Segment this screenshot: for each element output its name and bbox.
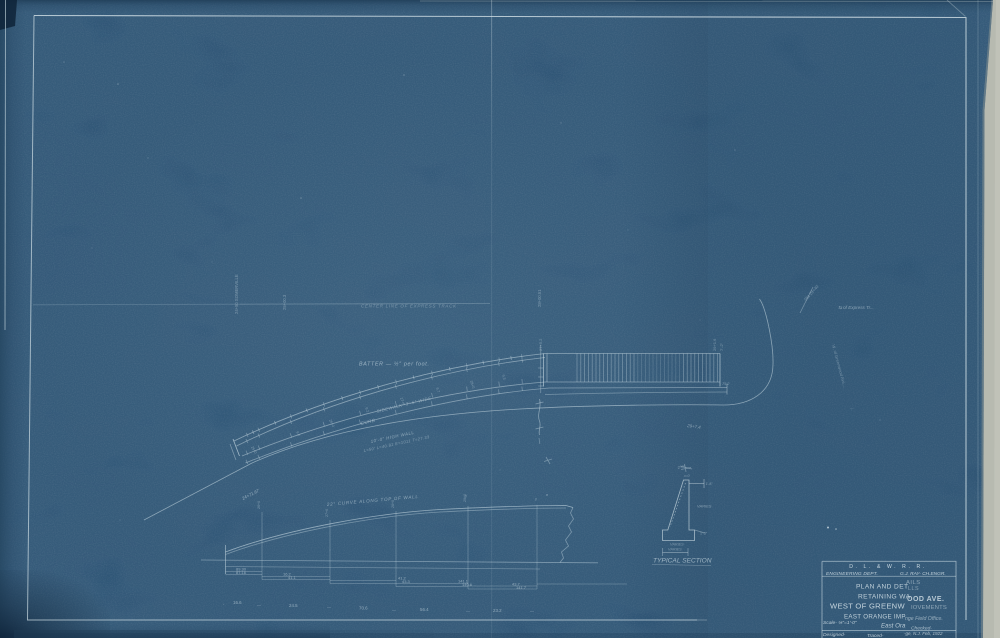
svg-text:1'-3": 1'-3" [700, 532, 708, 536]
svg-text:CENTER LINE OF EXPRESS TRACK: CENTER LINE OF EXPRESS TRACK [361, 304, 457, 309]
svg-text:y: y [465, 493, 467, 498]
svg-text:RETAINING WA: RETAINING WA [858, 594, 911, 601]
svg-text:IOVEMENTS: IOVEMENTS [911, 605, 947, 611]
svg-text:27+5.2: 27+5.2 [538, 338, 543, 351]
svg-text:x=0': x=0' [684, 474, 691, 478]
svg-text:East Ora: East Ora [881, 623, 906, 630]
svg-text:87.16: 87.16 [236, 570, 247, 575]
svg-text:nge Field Office.: nge Field Office. [905, 616, 943, 622]
svg-text:140.6: 140.6 [462, 582, 473, 587]
svg-text:70.6: 70.6 [359, 606, 368, 611]
svg-text:—: — [466, 609, 470, 614]
svg-text:7'-2": 7'-2" [719, 342, 724, 351]
svg-text:ENGINEERING DEPT.: ENGINEERING DEPT. [826, 571, 878, 577]
svg-text:41.1: 41.1 [288, 575, 297, 580]
svg-text:24.5: 24.5 [289, 603, 298, 608]
svg-text:VARIES: VARIES [697, 504, 712, 509]
svg-text:28+00.51: 28+00.51 [537, 289, 542, 307]
svg-text:VARIES: VARIES [670, 543, 684, 547]
svg-text:26+0: 26+0 [257, 501, 261, 509]
svg-text:29+1.6: 29+1.6 [712, 338, 717, 351]
svg-text:Designed-: Designed- [823, 632, 846, 638]
svg-text:y: y [535, 496, 537, 501]
svg-text:D. L. & W. R. R.: D. L. & W. R. R. [849, 564, 927, 570]
svg-text:—: — [530, 608, 534, 613]
svg-text:EAST ORANGE IMP: EAST ORANGE IMP [844, 614, 906, 621]
svg-text:-ge, N.J. Feb, 1922: -ge, N.J. Feb, 1922 [904, 631, 943, 636]
svg-text:TYPICAL SECTION: TYPICAL SECTION [653, 558, 712, 565]
svg-text:27+0: 27+0 [325, 509, 329, 517]
svg-text:25+00.3: 25+00.3 [282, 294, 287, 310]
svg-text:WEST OF GREENW: WEST OF GREENW [830, 602, 905, 611]
svg-text:—: — [327, 605, 331, 610]
svg-text:56.4: 56.4 [420, 607, 429, 612]
svg-text:—: — [392, 607, 396, 612]
svg-text:PLAN AND DET: PLAN AND DET [856, 584, 908, 591]
svg-text:—: — [257, 602, 261, 607]
svg-text:16.6: 16.6 [233, 600, 242, 605]
svg-text:G.J. RAY- CH.ENGR.: G.J. RAY- CH.ENGR. [900, 571, 946, 577]
svg-text:28+0: 28+0 [391, 500, 395, 508]
svg-text:23.2: 23.2 [493, 608, 502, 613]
svg-text:BATTER — ½" per foot.: BATTER — ½" per foot. [359, 361, 430, 368]
svg-text:VARIES: VARIES [668, 548, 682, 552]
svg-text:141.7: 141.7 [516, 585, 527, 590]
svg-text:43.3: 43.3 [402, 579, 411, 584]
svg-text:LLS: LLS [908, 586, 919, 592]
svg-text:24+50 SOMERVILLE: 24+50 SOMERVILLE [234, 274, 239, 314]
svg-text:OOD AVE.: OOD AVE. [907, 596, 944, 603]
svg-text:Scale- ⅛"=1'-0": Scale- ⅛"=1'-0" [823, 620, 857, 626]
svg-text:⇆ of Express Tr...: ⇆ of Express Tr... [838, 305, 874, 310]
svg-text:1'-8": 1'-8" [706, 482, 714, 486]
svg-text:75.2: 75.2 [722, 382, 730, 386]
svg-text:Traced-: Traced- [867, 633, 884, 638]
